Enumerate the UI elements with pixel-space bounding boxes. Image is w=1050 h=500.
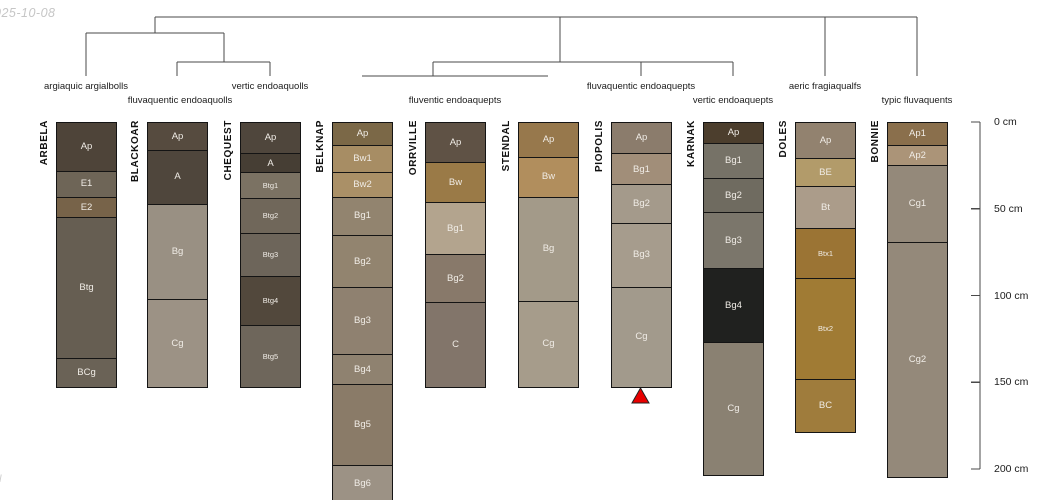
horizon-btg5: Btg5 bbox=[241, 326, 300, 387]
horizon-bg1: Bg1 bbox=[426, 203, 485, 255]
horizon-label: Bg4 bbox=[354, 365, 371, 375]
horizon-label: Cg bbox=[171, 339, 183, 349]
taxon-label: typic fluvaquents bbox=[882, 95, 953, 106]
horizon-label: Bg6 bbox=[354, 479, 371, 489]
horizon-label: Ap bbox=[543, 135, 555, 145]
horizon-label: Ap bbox=[450, 138, 462, 148]
horizon-label: Bg bbox=[543, 244, 555, 254]
horizon-bg2: Bg2 bbox=[612, 185, 671, 223]
taxon-label: fluventic endoaquepts bbox=[409, 95, 501, 106]
profile-column-bonnie: Ap1Ap2Cg1Cg2 bbox=[887, 122, 948, 478]
horizon-label: Bg2 bbox=[725, 191, 742, 201]
horizon-bg6: Bg6 bbox=[333, 466, 392, 500]
horizon-bg3: Bg3 bbox=[704, 213, 763, 269]
profile-name-karnak: KARNAK bbox=[686, 120, 697, 167]
horizon-btg2: Btg2 bbox=[241, 199, 300, 234]
horizon-label: Btx1 bbox=[818, 250, 833, 258]
horizon-label: C bbox=[452, 340, 459, 350]
horizon-bw1: Bw1 bbox=[333, 146, 392, 174]
horizon-ap: Ap bbox=[333, 123, 392, 146]
taxon-label: fluvaquentic endoaquolls bbox=[128, 95, 233, 106]
horizon-label: BE bbox=[819, 168, 832, 178]
horizon-label: Btx2 bbox=[818, 325, 833, 333]
horizon-bc: BC bbox=[796, 380, 855, 432]
profile-name-bonnie: BONNIE bbox=[870, 120, 881, 163]
horizon-bg3: Bg3 bbox=[612, 224, 671, 288]
horizon-cg: Cg bbox=[612, 288, 671, 387]
horizon-btg3: Btg3 bbox=[241, 234, 300, 277]
horizon-cg: Cg bbox=[519, 302, 578, 387]
horizon-bg4: Bg4 bbox=[333, 355, 392, 384]
horizon-btg: Btg bbox=[57, 218, 116, 359]
profile-column-orrville: ApBwBg1Bg2C bbox=[425, 122, 486, 388]
horizon-bg2: Bg2 bbox=[426, 255, 485, 304]
horizon-label: Bg1 bbox=[447, 224, 464, 234]
taxon-label: aeric fragiaqualfs bbox=[789, 81, 861, 92]
horizon-label: Bw2 bbox=[353, 180, 371, 190]
horizon-ap: Ap bbox=[519, 123, 578, 158]
marker-triangle bbox=[632, 388, 649, 403]
horizon-label: A bbox=[174, 172, 180, 182]
horizon-btg4: Btg4 bbox=[241, 277, 300, 326]
horizon-label: Bg1 bbox=[354, 211, 371, 221]
depth-tick-label: 0 cm bbox=[994, 116, 1017, 128]
horizon-bg4: Bg4 bbox=[704, 269, 763, 344]
horizon-label: Bg2 bbox=[354, 257, 371, 267]
profile-name-orrville: ORRVILLE bbox=[408, 120, 419, 175]
taxon-label: argiaquic argialbolls bbox=[44, 81, 128, 92]
horizon-label: Ap bbox=[357, 129, 369, 139]
horizon-ap: Ap bbox=[704, 123, 763, 144]
horizon-bg: Bg bbox=[148, 205, 207, 300]
horizon-label: Bg bbox=[172, 247, 184, 257]
horizon-label: Bw1 bbox=[353, 154, 371, 164]
depth-tick-label: 150 cm bbox=[994, 376, 1028, 388]
horizon-label: Bg3 bbox=[354, 316, 371, 326]
horizon-label: Ap bbox=[265, 133, 277, 143]
horizon-label: Bg3 bbox=[725, 236, 742, 246]
horizon-label: Ap bbox=[81, 142, 93, 152]
horizon-label: E1 bbox=[81, 179, 93, 189]
horizon-label: Ap2 bbox=[909, 151, 926, 161]
horizon-label: Bt bbox=[821, 203, 830, 213]
horizon-bt: Bt bbox=[796, 187, 855, 229]
horizon-label: Cg bbox=[542, 339, 554, 349]
horizon-bcg: BCg bbox=[57, 359, 116, 387]
horizon-bg2: Bg2 bbox=[704, 179, 763, 214]
taxon-label: vertic endoaquolls bbox=[232, 81, 309, 92]
horizon-ap: Ap bbox=[241, 123, 300, 154]
horizon-label: Cg1 bbox=[909, 199, 926, 209]
depth-tick-label: 200 cm bbox=[994, 463, 1028, 475]
profile-column-belknap: ApBw1Bw2Bg1Bg2Bg3Bg4Bg5Bg6 bbox=[332, 122, 393, 500]
horizon-label: Btg4 bbox=[263, 297, 278, 305]
profile-column-stendal: ApBwBgCg bbox=[518, 122, 579, 388]
horizon-label: BCg bbox=[77, 368, 95, 378]
horizon-label: Ap bbox=[172, 132, 184, 142]
horizon-label: Bg1 bbox=[633, 165, 650, 175]
profile-name-arbela: ARBELA bbox=[39, 120, 50, 165]
profile-column-arbela: ApE1E2BtgBCg bbox=[56, 122, 117, 388]
profile-column-doles: ApBEBtBtx1Btx2BC bbox=[795, 122, 856, 433]
horizon-bg1: Bg1 bbox=[704, 144, 763, 179]
horizon-bg5: Bg5 bbox=[333, 385, 392, 467]
horizon-cg: Cg bbox=[704, 343, 763, 475]
horizon-cg2: Cg2 bbox=[888, 243, 947, 477]
horizon-label: Bg2 bbox=[447, 274, 464, 284]
horizon-bg3: Bg3 bbox=[333, 288, 392, 356]
soil-profile-figure: 025-10-08 ll argiaquic argialbollsfluvaq… bbox=[0, 0, 1050, 500]
horizon-label: Bg1 bbox=[725, 156, 742, 166]
horizon-label: Ap bbox=[636, 133, 648, 143]
horizon-label: Cg bbox=[727, 404, 739, 414]
depth-tick-label: 100 cm bbox=[994, 290, 1028, 302]
horizon-label: Ap1 bbox=[909, 129, 926, 139]
horizon-label: Bg2 bbox=[633, 199, 650, 209]
taxon-label: fluvaquentic endoaquepts bbox=[587, 81, 695, 92]
profile-name-blackoar: BLACKOAR bbox=[130, 120, 141, 182]
horizon-btg1: Btg1 bbox=[241, 173, 300, 199]
horizon-ap: Ap bbox=[426, 123, 485, 163]
horizon-label: Bg3 bbox=[633, 250, 650, 260]
profile-name-stendal: STENDAL bbox=[501, 120, 512, 171]
horizon-bg: Bg bbox=[519, 198, 578, 302]
horizon-be: BE bbox=[796, 159, 855, 187]
horizon-label: Btg2 bbox=[263, 212, 278, 220]
horizon-bw: Bw bbox=[519, 158, 578, 198]
profile-column-blackoar: ApABgCg bbox=[147, 122, 208, 388]
profile-column-piopolis: ApBg1Bg2Bg3Cg bbox=[611, 122, 672, 388]
depth-tick-label: 50 cm bbox=[994, 203, 1023, 215]
horizon-label: Cg2 bbox=[909, 355, 926, 365]
horizon-label: Btg bbox=[79, 283, 93, 293]
horizon-btx1: Btx1 bbox=[796, 229, 855, 279]
horizon-c: C bbox=[426, 303, 485, 386]
profile-column-chequest: ApABtg1Btg2Btg3Btg4Btg5 bbox=[240, 122, 301, 388]
horizon-btx2: Btx2 bbox=[796, 279, 855, 380]
horizon-label: Btg1 bbox=[263, 182, 278, 190]
horizon-label: Bw bbox=[542, 172, 555, 182]
horizon-label: Bg5 bbox=[354, 420, 371, 430]
horizon-label: A bbox=[267, 159, 273, 169]
horizon-label: Ap bbox=[820, 136, 832, 146]
horizon-label: BC bbox=[819, 401, 832, 411]
horizon-cg1: Cg1 bbox=[888, 166, 947, 242]
horizon-label: Ap bbox=[728, 128, 740, 138]
profile-name-doles: DOLES bbox=[778, 120, 789, 157]
profile-name-belknap: BELKNAP bbox=[315, 120, 326, 173]
horizon-bg1: Bg1 bbox=[612, 154, 671, 185]
horizon-ap2: Ap2 bbox=[888, 146, 947, 167]
horizon-bw2: Bw2 bbox=[333, 173, 392, 197]
horizon-a: A bbox=[241, 154, 300, 173]
horizon-ap: Ap bbox=[148, 123, 207, 151]
horizon-bw: Bw bbox=[426, 163, 485, 203]
horizon-label: Cg bbox=[635, 332, 647, 342]
horizon-label: Btg3 bbox=[263, 251, 278, 259]
horizon-bg1: Bg1 bbox=[333, 198, 392, 236]
profile-name-chequest: CHEQUEST bbox=[223, 120, 234, 180]
profile-column-karnak: ApBg1Bg2Bg3Bg4Cg bbox=[703, 122, 764, 476]
taxon-label: vertic endoaquepts bbox=[693, 95, 773, 106]
horizon-ap: Ap bbox=[796, 123, 855, 159]
horizon-e2: E2 bbox=[57, 198, 116, 219]
profile-name-piopolis: PIOPOLIS bbox=[594, 120, 605, 172]
horizon-bg2: Bg2 bbox=[333, 236, 392, 288]
horizon-ap1: Ap1 bbox=[888, 123, 947, 146]
horizon-label: Bg4 bbox=[725, 301, 742, 311]
horizon-a: A bbox=[148, 151, 207, 205]
horizon-label: Bw bbox=[449, 178, 462, 188]
horizon-label: Btg5 bbox=[263, 353, 278, 361]
horizon-label: E2 bbox=[81, 203, 93, 213]
horizon-cg: Cg bbox=[148, 300, 207, 387]
horizon-ap: Ap bbox=[612, 123, 671, 154]
horizon-e1: E1 bbox=[57, 172, 116, 198]
horizon-ap: Ap bbox=[57, 123, 116, 172]
